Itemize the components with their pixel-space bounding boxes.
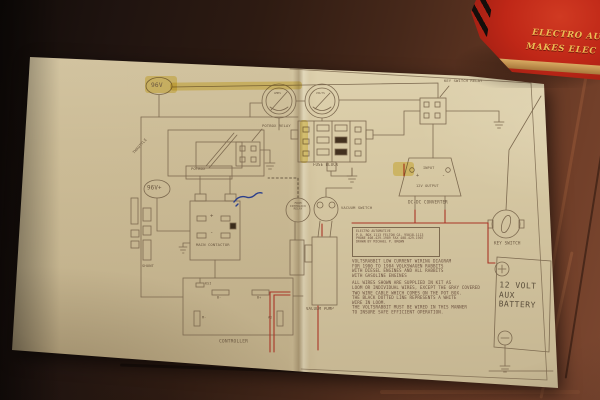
- controller-ksi-label: KSI: [205, 282, 211, 286]
- main-contactor-label: MAIN CONTACTOR: [196, 243, 230, 247]
- key-switch-symbol: [488, 210, 524, 238]
- dcdc-input-label: INPUT: [423, 166, 434, 170]
- title-block: ELECTRO AUTOMOTIVE P.O. BOX 1113 FELTON …: [352, 227, 440, 257]
- dcdc-plus-label: +: [416, 173, 419, 179]
- potbox-relay-label: POTBOX RELAY: [262, 124, 291, 128]
- contactor-plus-label: +: [210, 213, 213, 219]
- handwritten-note: [234, 193, 262, 206]
- dcdc-minus-label: -: [442, 173, 445, 179]
- contactor-minus-label: -: [210, 229, 213, 235]
- potbox-assembly: [168, 130, 264, 179]
- controller-symbol: [183, 278, 293, 335]
- aux-battery-text: 12 VOLT AUX BATTERY: [499, 280, 537, 310]
- main-contactor-symbol: [190, 194, 240, 260]
- title-block-line4: DRAWN BY MICHAEL P. BROWN: [356, 240, 423, 243]
- controller-bplus-label: B+: [257, 296, 261, 300]
- gauge-left-label: AMPS: [274, 92, 281, 95]
- diagram-notes: VOLTSRABBIT LOW CURRENT WIRING DIAGRAM F…: [352, 259, 480, 315]
- key-switch-label: KEY SWITCH: [494, 241, 521, 246]
- gauge-right-label: VOLTS: [316, 92, 325, 95]
- dotted-loom-wire: [268, 178, 298, 198]
- battery-line3: BATTERY: [499, 299, 537, 310]
- interlock-source-text: FROM INTERLOCK RELAY: [284, 202, 312, 210]
- highlighter-mark: [393, 162, 414, 176]
- shunt-label: SHUNT: [142, 264, 154, 268]
- vacuum-switch-symbol: [314, 197, 338, 221]
- vacuum-switch-label: VACUUM SWITCH: [341, 206, 372, 210]
- vacuum-pump-symbol: [290, 237, 337, 305]
- notes-line4: WITH GASOLINE ENGINES: [352, 274, 480, 279]
- drawing-frame: [290, 69, 547, 380]
- photo-scene: 96V 96V+ AMPS VOLTS POTBOX RELAY THROTTL…: [0, 0, 600, 400]
- potbox-label: POTBOX: [191, 167, 205, 171]
- dcdc-converter-label: DC-DC CONVERTER: [408, 200, 448, 205]
- key-switch-relay-symbol: [420, 98, 446, 124]
- vacuum-pump-label: VACUUM PUMP: [306, 307, 334, 311]
- notes-line11: TO INSURE SAFE EFFICIENT OPERATION.: [352, 310, 480, 315]
- fuse-block-label: FUSE BLOCK: [313, 163, 338, 167]
- dcdc-output-label: 12V OUTPUT: [416, 184, 439, 188]
- highlighter-mark: [170, 81, 302, 90]
- controller-a2-label: A2: [268, 316, 272, 320]
- interlock-line3: RELAY: [284, 208, 312, 211]
- controller-bminus-label: B-: [217, 296, 221, 300]
- controller-mminus-label: M-: [202, 316, 206, 320]
- battery-line1: 12 VOLT: [499, 280, 537, 291]
- voltage-badge-mid: 96V+: [147, 185, 162, 191]
- highlighter-mark: [300, 120, 308, 163]
- controller-label: CONTROLLER: [219, 339, 248, 344]
- potbox-relay-symbol: [236, 142, 260, 166]
- voltage-badge-top: 96V: [151, 82, 163, 89]
- title-block-text: ELECTRO AUTOMOTIVE P.O. BOX 1113 FELTON …: [356, 230, 423, 243]
